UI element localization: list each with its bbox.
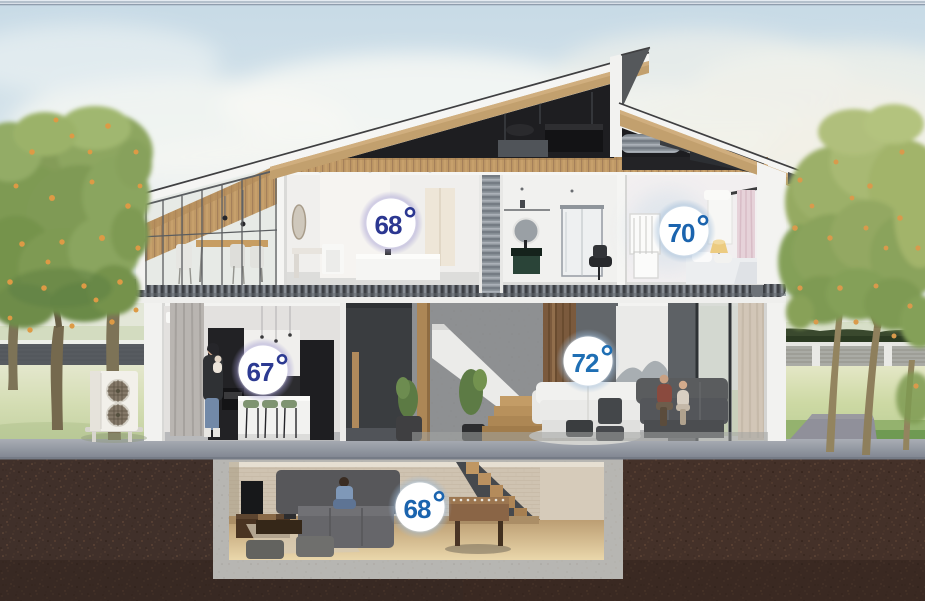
- svg-text:°: °: [696, 209, 710, 247]
- svg-text:72: 72: [572, 348, 599, 378]
- svg-text:67: 67: [247, 357, 274, 387]
- svg-text:°: °: [275, 348, 289, 386]
- svg-text:°: °: [403, 201, 417, 239]
- svg-text:68: 68: [375, 210, 402, 240]
- svg-text:70: 70: [668, 218, 695, 248]
- svg-text:°: °: [600, 339, 614, 377]
- svg-text:68: 68: [404, 494, 431, 524]
- svg-text:°: °: [432, 485, 446, 523]
